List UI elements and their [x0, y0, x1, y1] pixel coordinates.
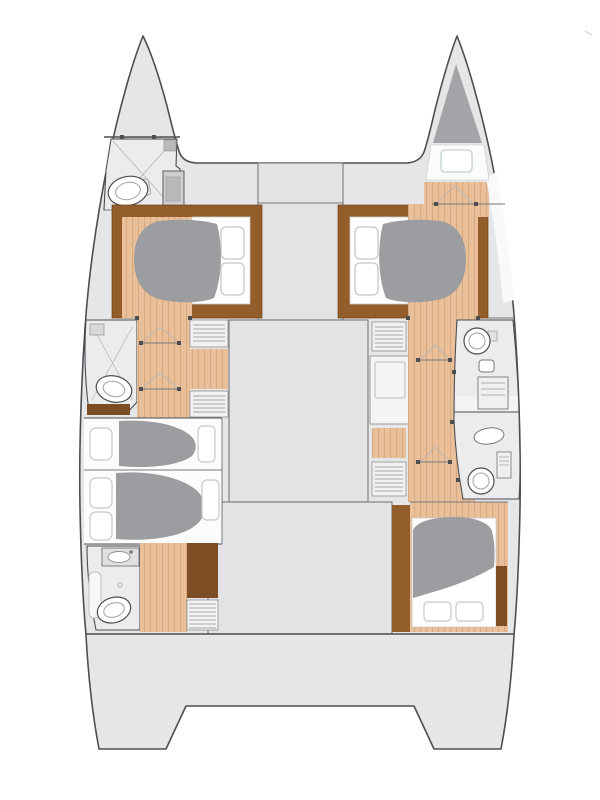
hinge-dot	[139, 387, 143, 391]
pillow	[198, 426, 215, 462]
catamaran-floorplan	[0, 0, 600, 800]
hinge-dot	[448, 460, 452, 464]
port-guest-cabin	[84, 418, 222, 544]
bed-frame	[496, 566, 507, 626]
hinge-dot	[434, 202, 438, 206]
hinge-dot	[188, 316, 192, 320]
stair-landing-wood	[190, 349, 228, 389]
pillow	[355, 263, 378, 295]
port-forward-cabin	[112, 205, 262, 318]
hinge-dot	[448, 358, 452, 362]
pillow	[424, 602, 451, 621]
floorplan-canvas	[0, 0, 600, 800]
bed-frame	[392, 505, 410, 632]
center-forward-block	[258, 163, 343, 320]
hull-window	[90, 478, 112, 508]
center-aft-block	[208, 502, 392, 634]
deck-hatch	[441, 150, 472, 172]
hinge-dot	[139, 341, 143, 345]
hinge-dot	[152, 135, 156, 139]
port-aft-companionway	[140, 543, 218, 632]
shelf	[164, 140, 176, 151]
stair-landing-wood	[372, 428, 406, 458]
toilet-icon	[468, 468, 494, 494]
hinge-dot	[406, 316, 410, 320]
center-mid-block	[229, 320, 368, 502]
corridor-wood-floor	[140, 543, 187, 632]
hinge-dot	[456, 478, 460, 482]
port-companionway-steps	[190, 320, 228, 417]
sink-icon	[479, 360, 494, 372]
cabinet-block	[187, 543, 218, 598]
hinge-dot	[452, 370, 456, 374]
hinge-dot	[416, 460, 420, 464]
sink-icon	[90, 324, 104, 335]
sink-icon	[108, 552, 130, 563]
pillow	[221, 227, 244, 259]
trim-band	[87, 404, 130, 415]
cabinet-block	[370, 356, 410, 424]
hinge-dot	[177, 341, 181, 345]
hinge-dot	[177, 387, 181, 391]
shower-cabinet	[478, 377, 508, 409]
faucet-dot	[129, 550, 133, 554]
pillow	[202, 480, 219, 520]
port-corridor	[137, 318, 190, 420]
hull-window	[90, 428, 112, 460]
drawer-unit	[190, 320, 228, 347]
hinge-dot	[416, 358, 420, 362]
hinge-dot	[120, 135, 124, 139]
pillow	[355, 227, 378, 259]
corridor-wood-floor	[137, 318, 190, 420]
hull-window	[90, 512, 112, 540]
starboard-inboard-cabinets	[370, 322, 410, 496]
starboard-aft-cabin	[392, 502, 508, 632]
bed-duvet	[134, 220, 221, 303]
hinge-dot	[474, 202, 478, 206]
port-mid-bathroom	[85, 320, 137, 415]
stray-mark	[585, 31, 592, 35]
starboard-bathrooms	[450, 320, 520, 499]
hinge-dot	[476, 316, 480, 320]
stairs	[187, 600, 218, 630]
shower-tray	[166, 177, 180, 201]
pillow	[456, 602, 483, 621]
pillow	[221, 263, 244, 295]
hinge-dot	[135, 316, 139, 320]
port-bow-head	[104, 135, 184, 210]
hinge-dot	[450, 420, 454, 424]
port-aft-bathroom	[87, 546, 140, 630]
bed-duvet	[379, 220, 466, 303]
